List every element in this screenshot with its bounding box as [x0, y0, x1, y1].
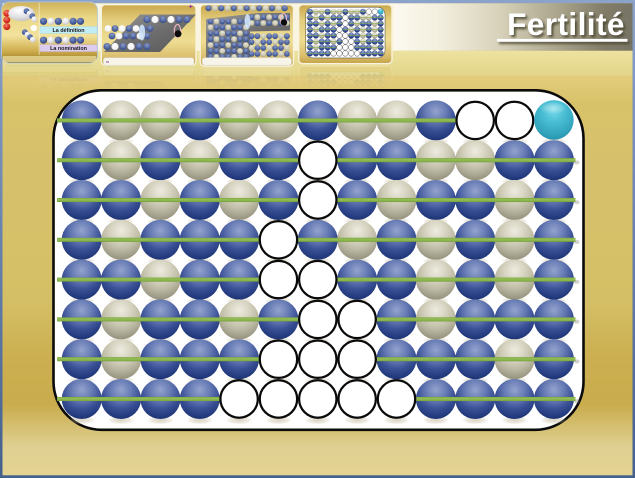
svg-text:La définition: La définition: [52, 28, 84, 34]
svg-text:Fertilité: Fertilité: [507, 6, 625, 42]
svg-text:La nomination: La nomination: [50, 46, 87, 52]
